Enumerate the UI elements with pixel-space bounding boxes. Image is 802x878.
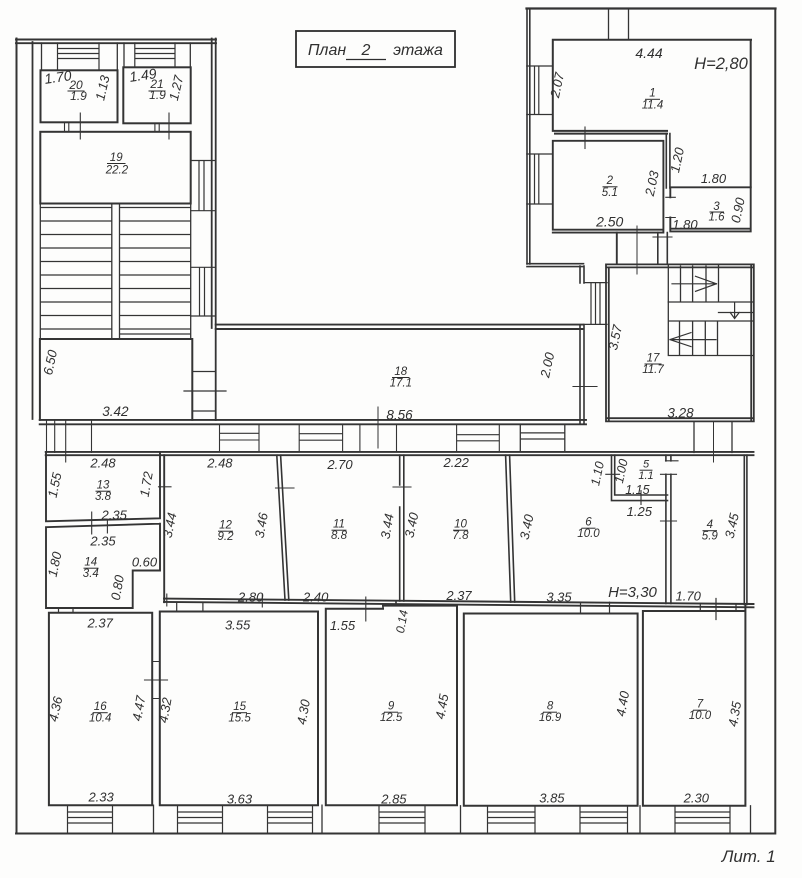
svg-text:4.44: 4.44: [635, 45, 662, 61]
svg-text:17.1: 17.1: [390, 378, 412, 390]
svg-text:3.4: 3.4: [83, 568, 99, 580]
svg-text:3.63: 3.63: [227, 791, 253, 806]
svg-text:10.0: 10.0: [577, 528, 600, 540]
svg-text:1.25: 1.25: [627, 504, 653, 519]
svg-text:7: 7: [697, 699, 704, 711]
svg-text:2.37: 2.37: [445, 588, 472, 603]
svg-text:9: 9: [388, 701, 395, 713]
svg-text:1.15: 1.15: [625, 483, 649, 497]
svg-text:7.8: 7.8: [453, 530, 470, 542]
svg-text:5.9: 5.9: [702, 530, 719, 542]
svg-text:2.30: 2.30: [683, 790, 710, 805]
svg-text:15.5: 15.5: [228, 712, 251, 724]
svg-text:2.22: 2.22: [443, 455, 470, 470]
svg-text:1.9: 1.9: [149, 88, 166, 102]
svg-text:10.4: 10.4: [89, 712, 111, 724]
svg-text:План: План: [308, 42, 347, 59]
svg-text:16: 16: [94, 701, 107, 713]
svg-text:0.60: 0.60: [132, 554, 158, 569]
svg-text:15: 15: [233, 701, 246, 713]
svg-text:5: 5: [643, 459, 650, 471]
svg-text:3.28: 3.28: [667, 406, 694, 421]
svg-text:2: 2: [361, 42, 371, 59]
svg-text:8.8: 8.8: [331, 530, 348, 542]
svg-text:9.2: 9.2: [218, 531, 235, 543]
svg-text:2.40: 2.40: [302, 590, 329, 605]
svg-text:17: 17: [647, 353, 660, 365]
svg-text:1.80: 1.80: [672, 217, 698, 232]
svg-text:10.0: 10.0: [689, 710, 712, 722]
svg-text:2.48: 2.48: [89, 455, 116, 470]
svg-text:12: 12: [219, 520, 232, 532]
svg-text:1.55: 1.55: [330, 618, 356, 633]
svg-text:10: 10: [454, 519, 467, 531]
svg-text:H=3,30: H=3,30: [608, 584, 657, 601]
svg-text:22.2: 22.2: [105, 165, 129, 177]
svg-text:11.7: 11.7: [642, 364, 664, 376]
svg-text:2.35: 2.35: [89, 533, 116, 548]
svg-text:2.80: 2.80: [237, 590, 264, 605]
svg-text:3.55: 3.55: [225, 617, 251, 632]
svg-text:3.8: 3.8: [95, 491, 112, 503]
svg-text:19: 19: [110, 152, 123, 164]
svg-text:3.42: 3.42: [102, 404, 129, 419]
svg-text:2.50: 2.50: [595, 214, 623, 230]
svg-text:1: 1: [649, 88, 655, 100]
svg-text:3.35: 3.35: [546, 590, 572, 605]
svg-text:1.80: 1.80: [701, 171, 727, 186]
svg-text:14: 14: [84, 557, 97, 569]
svg-text:11.4: 11.4: [642, 100, 664, 112]
svg-text:2.48: 2.48: [206, 455, 233, 470]
svg-text:18: 18: [394, 366, 407, 378]
svg-text:1.70: 1.70: [676, 589, 702, 604]
svg-text:Лит. 1: Лит. 1: [721, 847, 776, 866]
svg-text:5.1: 5.1: [602, 187, 618, 199]
svg-text:2.70: 2.70: [326, 457, 353, 472]
svg-text:11: 11: [333, 519, 345, 531]
svg-text:2.37: 2.37: [87, 616, 114, 631]
svg-text:3.85: 3.85: [539, 790, 565, 805]
svg-text:12.5: 12.5: [380, 712, 403, 724]
svg-text:4: 4: [707, 519, 713, 531]
svg-text:2.85: 2.85: [380, 791, 407, 806]
svg-text:13: 13: [97, 480, 110, 492]
svg-text:2.33: 2.33: [87, 789, 114, 804]
svg-text:8: 8: [547, 701, 554, 713]
svg-text:1.6: 1.6: [709, 212, 726, 224]
svg-text:16.9: 16.9: [539, 712, 562, 724]
svg-text:H=2,80: H=2,80: [694, 55, 748, 73]
svg-text:1.1: 1.1: [638, 470, 653, 482]
svg-text:2.35: 2.35: [101, 507, 128, 522]
svg-text:2: 2: [606, 175, 614, 187]
svg-text:этажа: этажа: [393, 42, 443, 59]
svg-text:8.56: 8.56: [386, 408, 413, 423]
svg-text:6: 6: [585, 517, 592, 529]
